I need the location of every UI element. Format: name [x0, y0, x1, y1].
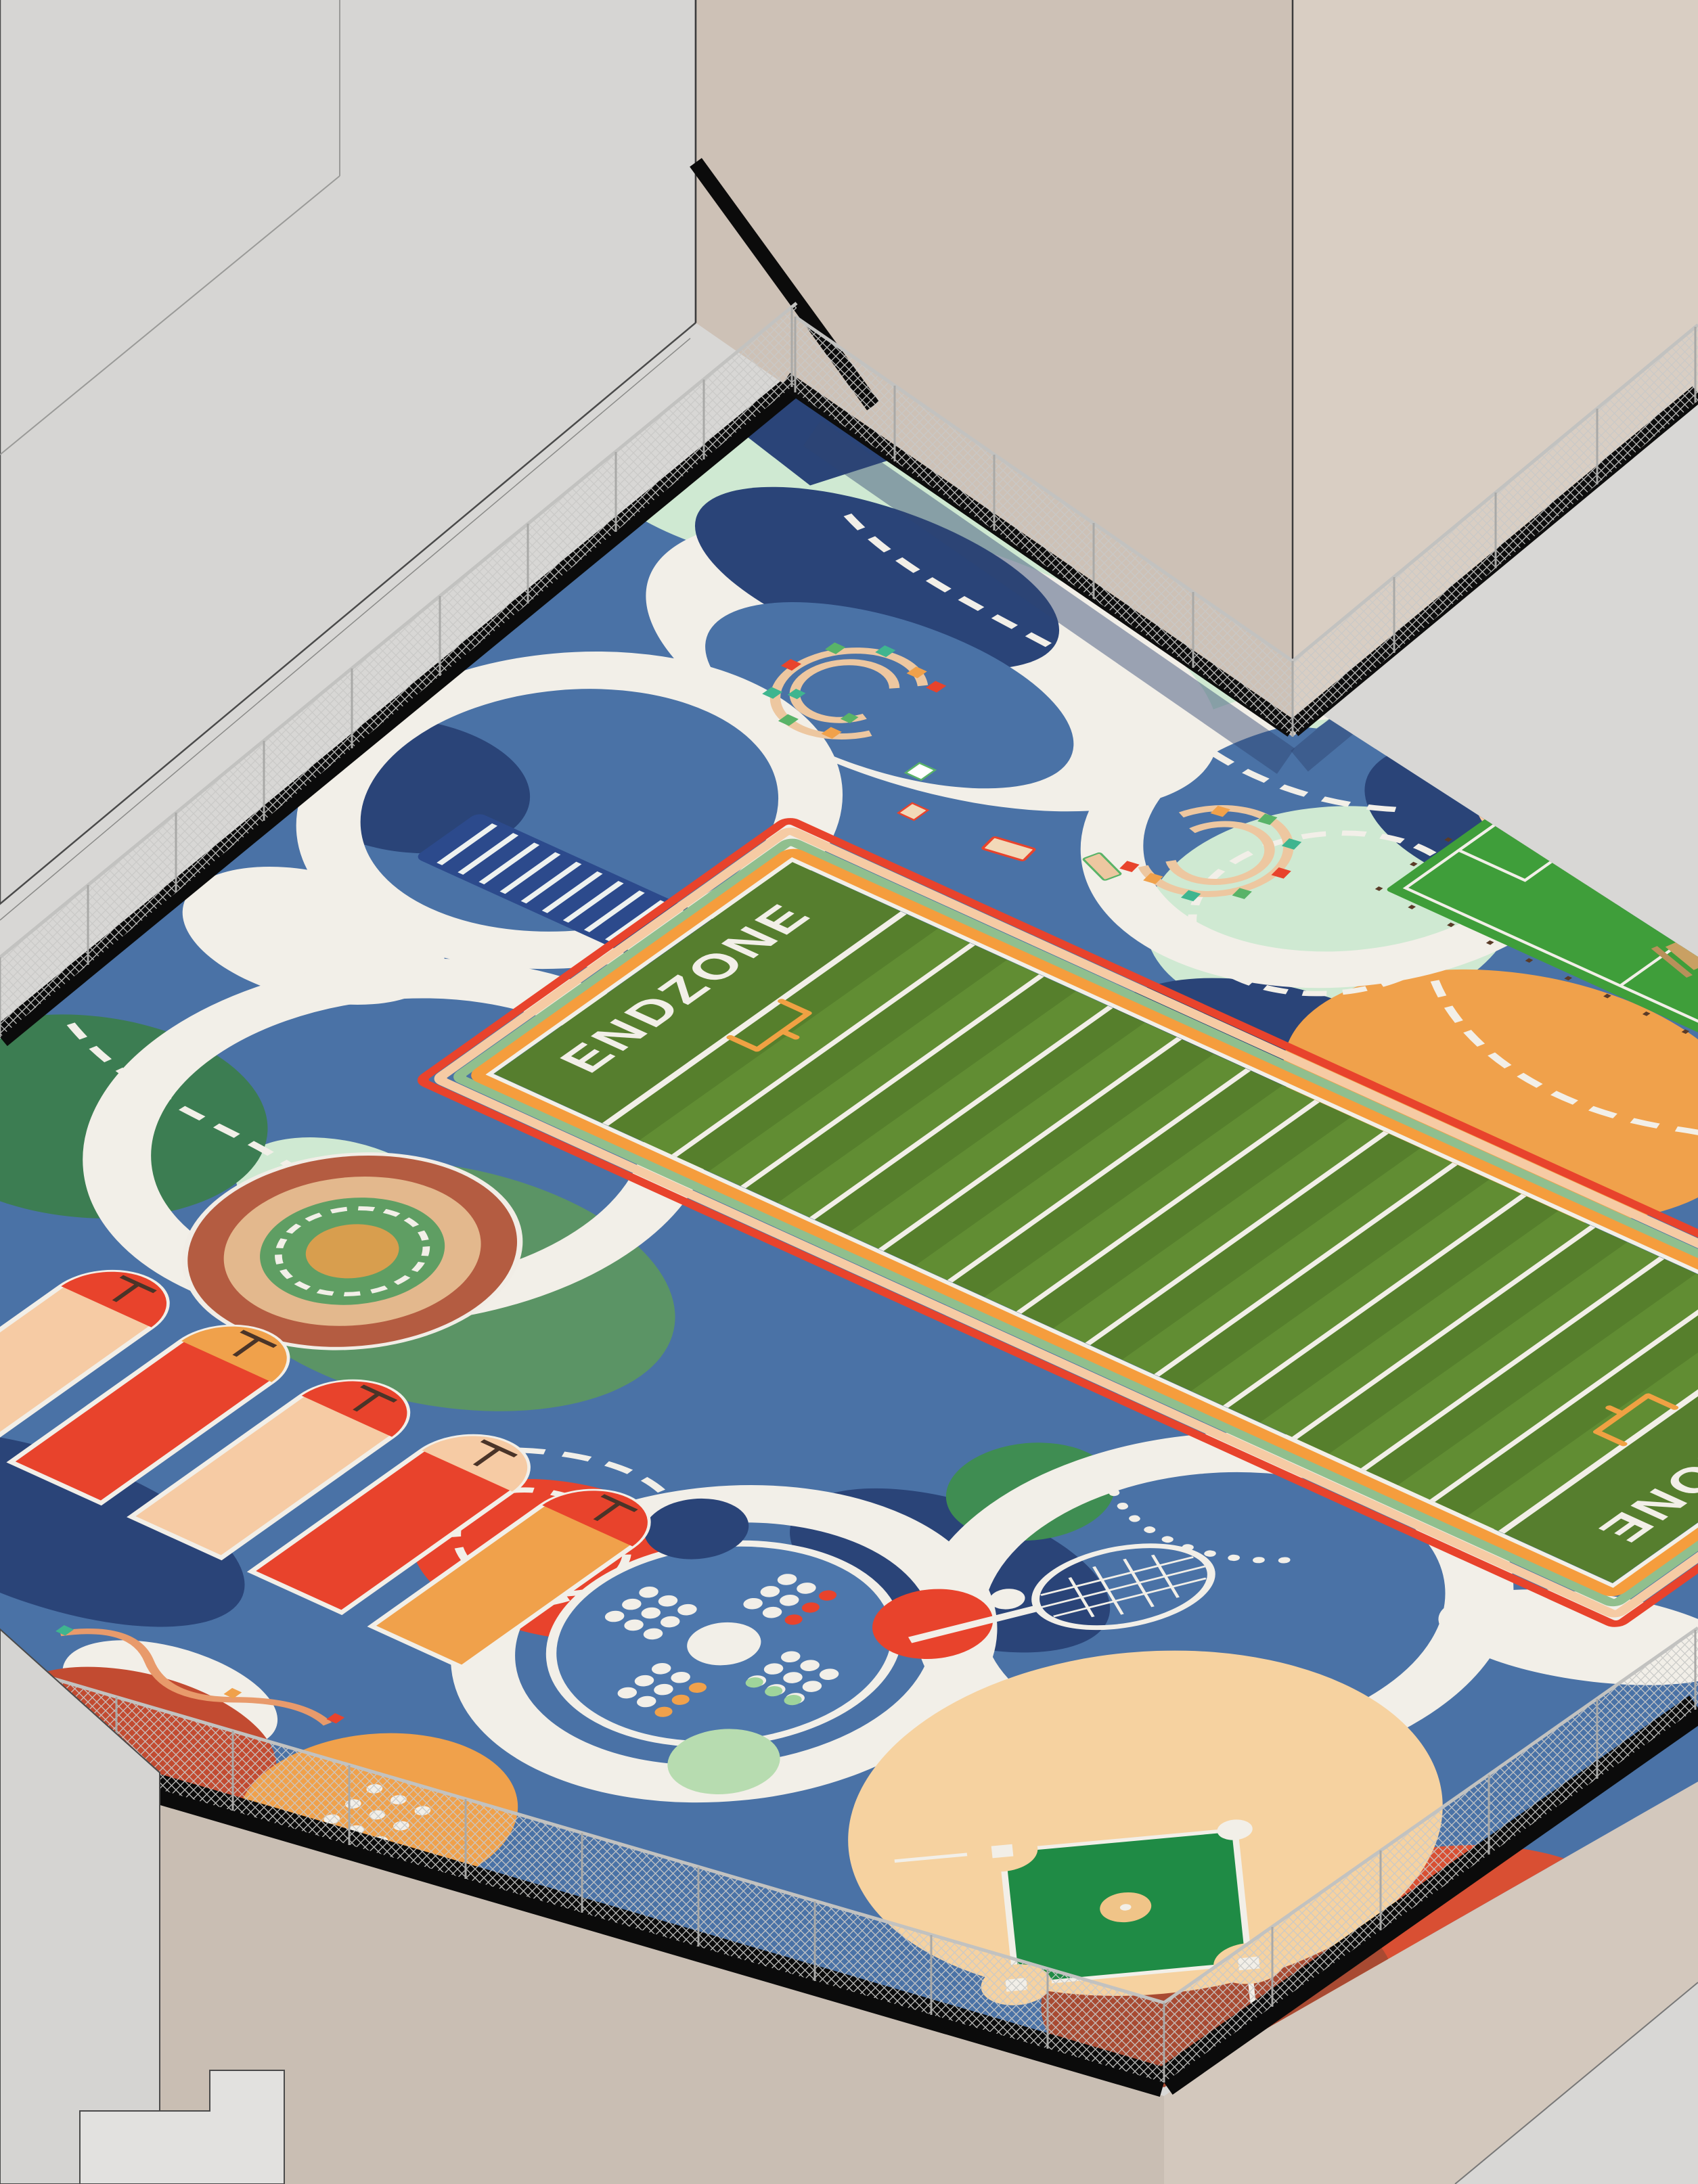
rooftop-playground-rendering: ENDZONE ENDZONE	[0, 0, 1698, 2184]
base	[991, 1844, 1014, 1859]
